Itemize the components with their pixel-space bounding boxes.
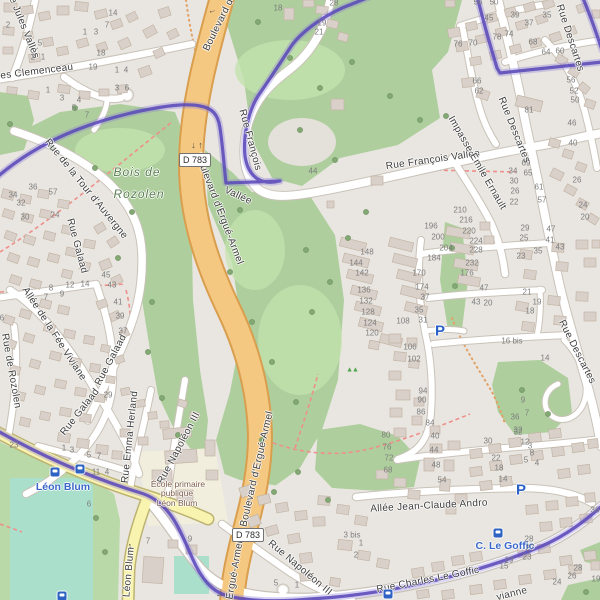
house-number: 224 bbox=[469, 237, 482, 246]
park-label: Rozolen bbox=[113, 187, 164, 201]
oneway-arrow-icon: ← bbox=[206, 4, 217, 16]
house-number: 120 bbox=[365, 329, 378, 338]
house-number: 7 bbox=[44, 293, 48, 302]
house-number: 74 bbox=[505, 30, 514, 39]
house-number: 136 bbox=[357, 286, 370, 295]
house-number: 86 bbox=[417, 408, 426, 417]
house-number: 7 bbox=[146, 537, 150, 546]
house-number: 6 bbox=[125, 84, 129, 93]
house-number: 41 bbox=[546, 236, 555, 245]
map-labels-layer: e Jules Vallèsges ClemenceauRue de la To… bbox=[0, 0, 600, 600]
house-number: 6 bbox=[0, 314, 4, 323]
house-number: 9 bbox=[188, 535, 192, 544]
house-number: 29 bbox=[104, 391, 113, 400]
house-number: 46 bbox=[568, 119, 577, 128]
house-number: 40 bbox=[569, 139, 578, 148]
house-number: 232 bbox=[465, 259, 478, 268]
house-number: 20 bbox=[581, 213, 590, 222]
street-label: Boulevard d'Ergué-Armel bbox=[193, 152, 246, 266]
house-number: 76 bbox=[383, 443, 392, 452]
house-number: 90 bbox=[418, 396, 427, 405]
street-label: Boulevard d'Ergué-Armel bbox=[238, 410, 275, 528]
house-number: 18 bbox=[97, 49, 106, 58]
house-number: 7 bbox=[105, 21, 109, 30]
transit-stop-icon bbox=[58, 592, 67, 600]
house-number: 31 bbox=[419, 316, 428, 325]
house-number: 1 bbox=[62, 444, 66, 453]
house-number: 30 bbox=[21, 213, 30, 222]
oneway-arrow-icon: ← bbox=[215, 588, 225, 599]
house-number: 228 bbox=[469, 246, 482, 255]
school-label: Léon Blum bbox=[157, 498, 198, 508]
house-number: 48 bbox=[432, 461, 441, 470]
house-number: 37 bbox=[421, 293, 430, 302]
house-number: 39 bbox=[116, 312, 125, 321]
route-ref-badge: D 783 bbox=[179, 153, 211, 167]
house-number: 2 bbox=[31, 53, 35, 62]
street-label: Rue Descartes bbox=[556, 318, 598, 385]
house-number: 62 bbox=[475, 87, 484, 96]
house-number: 3 bbox=[115, 84, 119, 93]
house-number: 26 bbox=[568, 572, 577, 581]
house-number: 1 bbox=[46, 86, 50, 95]
house-number: 66 bbox=[473, 77, 482, 86]
house-number: 5 bbox=[72, 104, 76, 113]
house-number: 3 bbox=[94, 28, 98, 37]
street-label: Rue Emma Herland bbox=[120, 390, 141, 483]
house-number: 3 bbox=[60, 94, 64, 103]
house-number: 28 bbox=[330, 0, 339, 8]
house-number: 14 bbox=[109, 9, 118, 18]
house-number: 64 bbox=[542, 48, 551, 57]
transit-stop-icon bbox=[494, 529, 503, 538]
parking-icon: P bbox=[516, 482, 526, 499]
street-label: Rue Napoléon III bbox=[155, 410, 202, 486]
house-number: 11 bbox=[92, 468, 100, 477]
street-label: Allée Jean-Claude Andro bbox=[370, 497, 488, 514]
house-number: 4 bbox=[77, 96, 81, 105]
house-number: 196 bbox=[424, 222, 437, 231]
oneway-arrow-icon: ↑ bbox=[127, 541, 132, 551]
house-number: 36 bbox=[29, 183, 38, 192]
house-number: 23 bbox=[523, 553, 532, 562]
house-number: 12 bbox=[66, 281, 75, 290]
playground-icon: ▲▲ bbox=[346, 367, 358, 374]
house-number: 68 bbox=[384, 466, 393, 475]
house-number: 35 bbox=[534, 247, 543, 256]
route-ref-badge: D 783 bbox=[232, 528, 264, 542]
house-number: 15 bbox=[500, 562, 509, 571]
house-number: 128 bbox=[361, 308, 374, 317]
house-number: 54 bbox=[438, 476, 447, 485]
street-label: Léon Blum bbox=[121, 546, 136, 597]
house-number: 1 bbox=[295, 581, 299, 590]
house-number: 108 bbox=[396, 317, 409, 326]
house-number: 68 bbox=[529, 38, 538, 47]
house-number: 9 bbox=[521, 396, 525, 405]
house-number: 35 bbox=[415, 306, 424, 315]
transit-stop-icon bbox=[384, 590, 393, 599]
house-number: 50 bbox=[490, 0, 499, 7]
house-number: 7 bbox=[97, 452, 101, 461]
house-number: 1 bbox=[115, 66, 119, 75]
house-number: 43 bbox=[108, 281, 117, 290]
house-number: 65 bbox=[524, 169, 533, 178]
house-number: 16 bis bbox=[501, 337, 522, 346]
house-number: 25 bbox=[520, 234, 529, 243]
house-number: 43 bbox=[556, 243, 565, 252]
house-number: 22 bbox=[510, 198, 519, 207]
street-label: Rue Galaad bbox=[93, 333, 129, 388]
transit-stop-icon bbox=[51, 468, 60, 477]
house-number: 174 bbox=[415, 283, 428, 292]
street-label: Impasse Émile Ernault bbox=[446, 114, 509, 212]
house-number: 50 bbox=[571, 96, 580, 105]
house-number: 1 bbox=[83, 28, 87, 37]
street-label: Rue Galaad bbox=[58, 386, 101, 437]
house-number: 23 bbox=[10, 441, 19, 450]
house-number: 26 bbox=[511, 187, 520, 196]
house-number: 94 bbox=[419, 387, 428, 396]
house-number: 44 bbox=[430, 446, 439, 455]
house-number: 9 bbox=[60, 290, 64, 299]
house-number: 32 bbox=[17, 199, 26, 208]
house-number: 60 bbox=[556, 47, 565, 56]
house-number: 28 bbox=[525, 535, 534, 544]
street-label: Rue de Rozolen bbox=[0, 333, 23, 410]
map-canvas[interactable]: e Jules Vallèsges ClemenceauRue de la To… bbox=[0, 0, 600, 600]
house-number: 22 bbox=[492, 454, 501, 463]
house-number: 4 bbox=[105, 468, 109, 477]
house-number: 144 bbox=[349, 259, 362, 268]
house-number: 45 bbox=[485, 14, 494, 23]
house-number: 14 bbox=[81, 280, 90, 289]
house-number: 216 bbox=[459, 216, 472, 225]
house-number: 142 bbox=[355, 269, 368, 278]
house-number: 32 bbox=[514, 428, 523, 437]
house-number: 41 bbox=[114, 298, 123, 307]
house-number: 18 bbox=[526, 307, 535, 316]
house-number: 5 bbox=[274, 579, 278, 588]
house-number: 70 bbox=[469, 39, 478, 48]
house-number: 81 bbox=[525, 106, 534, 115]
house-number: 37 bbox=[119, 327, 128, 336]
street-label: Rue Galaad bbox=[64, 217, 89, 274]
house-number: 76 bbox=[454, 40, 463, 49]
house-number: 35 bbox=[543, 11, 552, 20]
house-number: 19 bbox=[592, 575, 600, 584]
house-number: 61 bbox=[535, 183, 544, 192]
street-label: Rue Descartes bbox=[554, 3, 586, 73]
house-number: 170 bbox=[412, 269, 425, 278]
oneway-arrow-icon: ↓ ↑ bbox=[191, 140, 203, 150]
house-number: 4 bbox=[124, 66, 128, 75]
house-number: 30 bbox=[484, 437, 493, 446]
house-number: 19 bbox=[89, 63, 98, 72]
house-number: 14 bbox=[499, 475, 508, 484]
house-number: 56 bbox=[474, 0, 483, 7]
house-number: 14 bbox=[541, 354, 550, 363]
park-label: Bois de bbox=[113, 165, 160, 179]
house-number: 45 bbox=[102, 271, 111, 280]
house-number: 36 bbox=[511, 413, 520, 422]
street-label: vianne bbox=[495, 585, 528, 600]
house-number: 78 bbox=[493, 33, 502, 42]
house-number: 18 bbox=[495, 464, 504, 473]
house-number: 8 bbox=[49, 284, 53, 293]
house-number: 220 bbox=[462, 227, 475, 236]
house-number: 6 bbox=[87, 500, 91, 509]
house-number: 43 bbox=[472, 298, 481, 307]
parking-icon: P bbox=[435, 323, 445, 340]
house-number: 4 bbox=[535, 459, 539, 468]
house-number: 2 bbox=[6, 21, 10, 30]
house-number: 5 bbox=[524, 456, 528, 465]
house-number: 24 bbox=[51, 211, 60, 220]
house-number: 200 bbox=[431, 233, 444, 242]
house-number: 24 bbox=[553, 578, 562, 587]
house-number: 21 bbox=[315, 28, 324, 37]
house-number: 5 bbox=[87, 451, 91, 460]
street-label: Rue François bbox=[237, 108, 264, 172]
transit-stop-icon bbox=[76, 465, 85, 474]
street-label: Rue Napoléon III bbox=[266, 538, 334, 598]
house-number: 19 bbox=[318, 19, 327, 28]
house-number: 2 bbox=[354, 551, 358, 560]
house-number: 7 bbox=[85, 111, 89, 120]
house-number: 3 bbox=[528, 442, 532, 451]
house-number: 3 bbox=[70, 446, 74, 455]
house-number: 20 bbox=[484, 299, 493, 308]
house-number: 184 bbox=[427, 254, 440, 263]
house-number: 148 bbox=[360, 248, 373, 257]
street-label: Vallée bbox=[223, 185, 254, 207]
house-number: 57 bbox=[49, 188, 58, 197]
house-number: 210 bbox=[453, 206, 466, 215]
house-number: 18 bbox=[274, 4, 283, 13]
house-number: 40 bbox=[431, 432, 440, 441]
house-number: 47 bbox=[480, 284, 489, 293]
house-number: 29 bbox=[521, 224, 530, 233]
transit-stop-label: Léon Blum bbox=[36, 481, 90, 493]
house-number: 176 bbox=[460, 269, 473, 278]
house-number: 39 bbox=[511, 11, 520, 20]
house-number: 23 bbox=[517, 252, 526, 261]
house-number: 44 bbox=[309, 167, 318, 176]
house-number: 102 bbox=[407, 355, 420, 364]
house-number: 1 bbox=[359, 539, 363, 548]
house-number: 52 bbox=[570, 87, 579, 96]
house-number: 30 bbox=[510, 177, 519, 186]
house-number: 19 bbox=[533, 298, 542, 307]
house-number: 27 bbox=[526, 544, 535, 553]
house-number: 56 bbox=[567, 76, 576, 85]
house-number: 1 bbox=[41, 53, 45, 62]
street-label: e Jules Vallès bbox=[7, 0, 42, 60]
house-number: 84 bbox=[426, 419, 435, 428]
house-number: 21 bbox=[523, 288, 532, 297]
street-label: Ergué-Armel bbox=[224, 540, 245, 600]
house-number: 37 bbox=[525, 19, 534, 28]
house-number: 36 bbox=[591, 506, 600, 515]
street-label: ges Clemenceau bbox=[0, 62, 74, 83]
house-number: 80 bbox=[382, 431, 391, 440]
house-number: 57 bbox=[538, 196, 547, 205]
house-number: 106 bbox=[403, 343, 416, 352]
house-number: 204 bbox=[439, 244, 452, 253]
house-number: 69 bbox=[522, 159, 531, 168]
house-number: 5 bbox=[38, 39, 42, 48]
house-number: 132 bbox=[359, 297, 372, 306]
house-number: 34 bbox=[509, 167, 518, 176]
street-label: Allée de la Fée Viviane bbox=[20, 285, 89, 382]
house-number: 72 bbox=[385, 454, 394, 463]
school-label: publique bbox=[161, 488, 193, 498]
house-number: 24 bbox=[579, 201, 588, 210]
house-number: 26 bbox=[573, 176, 582, 185]
house-number: 47 bbox=[547, 225, 556, 234]
house-number: 124 bbox=[363, 319, 376, 328]
house-number: 7 bbox=[525, 409, 529, 418]
